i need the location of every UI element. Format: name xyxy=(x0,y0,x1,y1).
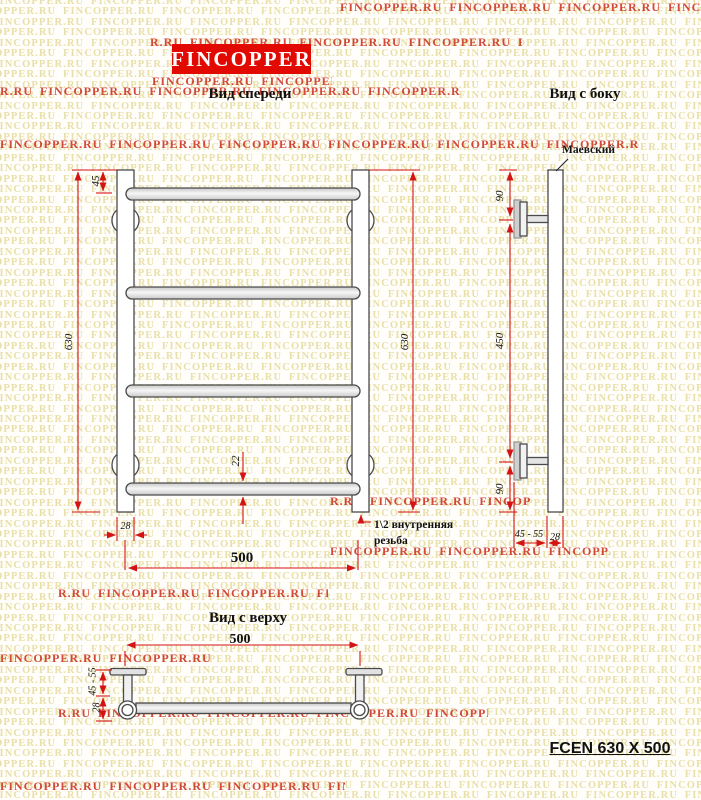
technical-drawing-page: FINCOPPER.RU FINCOPPER.RU FINCOPPER.RU F… xyxy=(0,0,701,800)
dimension-lines xyxy=(72,170,563,721)
front-view-title: Вид спереди xyxy=(170,86,330,103)
side-dim-450: 450 xyxy=(493,321,507,361)
side-dim-90-top: 90 xyxy=(493,181,507,211)
front-dim-630-left: 630 xyxy=(62,322,76,362)
side-dim-90-bottom: 90 xyxy=(493,474,507,504)
side-view-shape xyxy=(514,159,568,512)
top-view-title: Вид с верху xyxy=(168,610,328,627)
side-dim-28: 28 xyxy=(545,531,565,544)
top-view-shape xyxy=(110,669,382,720)
top-dim-500: 500 xyxy=(210,632,270,648)
front-dim-28: 28 xyxy=(110,520,141,533)
front-dim-630-right: 630 xyxy=(398,322,412,362)
thread-note-line1: 1\2 внутренняя xyxy=(374,519,453,531)
front-dim-45: 45 xyxy=(89,166,103,196)
thread-note-line2: резьба xyxy=(374,535,408,547)
front-dim-500: 500 xyxy=(212,550,272,567)
front-dim-22: 22 xyxy=(229,446,243,476)
drawing-lines xyxy=(0,0,701,800)
mayevsky-label: Маевский xyxy=(562,144,615,156)
model-number: FCEN 630 X 500 xyxy=(535,740,685,758)
fincopper-logo: FINCOPPER xyxy=(172,44,311,74)
side-view-title: Вид с боку xyxy=(515,86,655,103)
top-dim-28: 28 xyxy=(91,698,104,718)
